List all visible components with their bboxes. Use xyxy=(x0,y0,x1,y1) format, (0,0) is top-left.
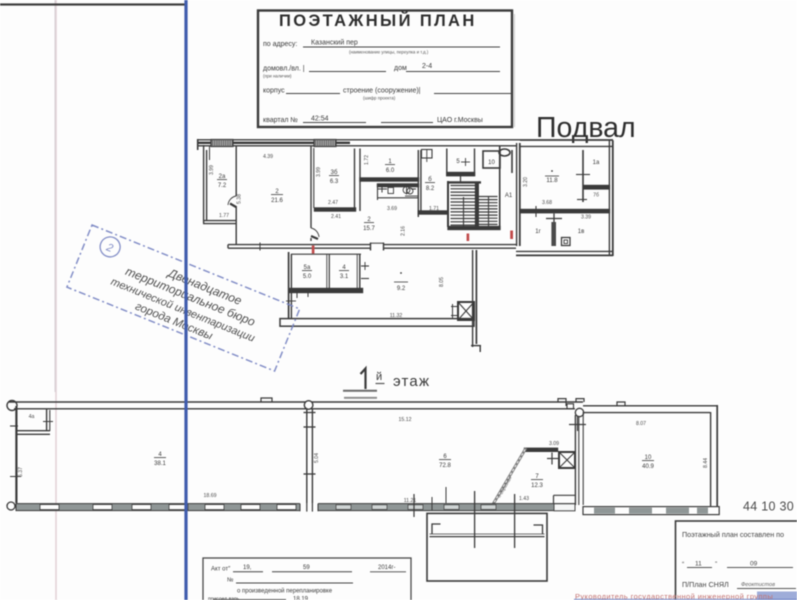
svg-text:3.20: 3.20 xyxy=(523,177,529,187)
svg-text:38.1: 38.1 xyxy=(154,461,166,467)
svg-text:2а: 2а xyxy=(219,174,226,180)
svg-text:3.99: 3.99 xyxy=(316,167,322,177)
svg-text:этаж: этаж xyxy=(393,373,430,390)
svg-text:10: 10 xyxy=(645,455,652,461)
svg-text:3.1: 3.1 xyxy=(340,274,349,280)
svg-text:3.09: 3.09 xyxy=(549,441,559,447)
svg-text:”: ” xyxy=(715,561,717,568)
svg-text:ПОЭТАЖНЫЙ ПЛАН: ПОЭТАЖНЫЙ ПЛАН xyxy=(279,11,477,30)
svg-text:1.77: 1.77 xyxy=(219,213,229,219)
svg-text:1.72: 1.72 xyxy=(364,155,370,165)
svg-text:Казанский пер: Казанский пер xyxy=(311,39,358,47)
svg-text:8.07: 8.07 xyxy=(636,421,646,427)
svg-text:5.37: 5.37 xyxy=(18,467,24,477)
svg-text:№: № xyxy=(227,577,233,584)
svg-text:б: б xyxy=(428,177,432,183)
svg-text:й: й xyxy=(376,371,382,383)
svg-text:3б: 3б xyxy=(331,170,338,176)
svg-text:11.21: 11.21 xyxy=(404,498,417,504)
svg-text:7.2: 7.2 xyxy=(218,183,227,189)
svg-text:09: 09 xyxy=(750,561,758,568)
svg-text:Акт от″: Акт от″ xyxy=(211,567,231,573)
svg-text:А1: А1 xyxy=(505,193,513,199)
svg-text:3.68: 3.68 xyxy=(542,200,552,206)
svg-text:2.47: 2.47 xyxy=(328,200,338,206)
svg-text:15.12: 15.12 xyxy=(399,417,412,423)
svg-text:(при наличии): (при наличии) xyxy=(263,74,292,79)
svg-text:3.99: 3.99 xyxy=(209,165,215,175)
svg-text:“: “ xyxy=(682,561,684,568)
svg-text:12.3: 12.3 xyxy=(531,483,543,489)
svg-text:1.71: 1.71 xyxy=(429,206,439,212)
svg-text:4.39: 4.39 xyxy=(263,154,273,160)
svg-text:8.44: 8.44 xyxy=(703,458,709,468)
svg-text:11.32: 11.32 xyxy=(390,313,403,319)
svg-text:42:54: 42:54 xyxy=(311,116,329,123)
svg-text:3.39: 3.39 xyxy=(581,215,591,221)
svg-text:40.9: 40.9 xyxy=(642,464,654,470)
svg-text:11: 11 xyxy=(695,561,702,568)
svg-text:5.0: 5.0 xyxy=(303,274,312,280)
svg-text:19,: 19, xyxy=(243,565,252,571)
svg-text:21.6: 21.6 xyxy=(271,198,283,204)
svg-text:10: 10 xyxy=(488,160,495,166)
svg-text:11.8: 11.8 xyxy=(546,178,558,184)
svg-text:квартал №: квартал № xyxy=(263,117,298,124)
svg-text:2.16: 2.16 xyxy=(401,226,407,236)
svg-text:59: 59 xyxy=(303,565,310,571)
svg-text:8.05: 8.05 xyxy=(439,277,445,287)
svg-text:5а: 5а xyxy=(304,265,311,271)
svg-text:7б: 7б xyxy=(593,193,599,199)
svg-text:1в: 1в xyxy=(578,229,585,235)
svg-text:П/План СНЯЛ: П/План СНЯЛ xyxy=(682,580,729,589)
svg-text:о произведенной перепланировке: о произведенной перепланировке xyxy=(237,588,333,595)
svg-text:Феоктистов: Феоктистов xyxy=(741,582,775,588)
svg-text:2-4: 2-4 xyxy=(422,63,432,70)
svg-text:8.2: 8.2 xyxy=(426,186,435,192)
svg-text:44 10 30: 44 10 30 xyxy=(743,500,794,514)
svg-text:3.69: 3.69 xyxy=(387,206,397,212)
svg-text:домовл./вл. |: домовл./вл. | xyxy=(263,66,305,73)
svg-text:2.41: 2.41 xyxy=(331,214,341,220)
svg-text:корпус: корпус xyxy=(263,88,285,95)
svg-text:1г: 1г xyxy=(535,229,541,235)
svg-text:72.8: 72.8 xyxy=(439,463,451,469)
svg-text:Поэтажный план составлен по: Поэтажный план составлен по xyxy=(682,530,784,539)
svg-text:(шифр проекта): (шифр проекта) xyxy=(363,96,396,101)
svg-text:строение (сооружение)|: строение (сооружение)| xyxy=(343,88,421,95)
svg-text:2014г-: 2014г- xyxy=(378,565,396,571)
svg-text:18.69: 18.69 xyxy=(204,493,217,499)
svg-text:9.2: 9.2 xyxy=(397,286,406,292)
svg-text:присоед.варь: присоед.варь xyxy=(208,597,240,600)
svg-text:5.38: 5.38 xyxy=(237,194,243,204)
svg-text:дом: дом xyxy=(394,65,407,72)
svg-text:6.3: 6.3 xyxy=(330,179,339,185)
svg-text:(наименование улицы, переулка: (наименование улицы, переулка и т.д.) xyxy=(349,50,429,55)
svg-text:1а: 1а xyxy=(593,160,600,166)
svg-text:4а: 4а xyxy=(29,414,35,420)
svg-text:по адресу:: по адресу: xyxy=(263,41,297,48)
svg-text:6.0: 6.0 xyxy=(386,168,395,174)
svg-text:5.04: 5.04 xyxy=(314,453,320,463)
svg-text:18.19: 18.19 xyxy=(293,597,309,600)
svg-text:15.7: 15.7 xyxy=(363,226,375,232)
svg-text:1.43: 1.43 xyxy=(519,496,529,502)
svg-text:ЦАО г.Москвы: ЦАО г.Москвы xyxy=(437,117,483,124)
